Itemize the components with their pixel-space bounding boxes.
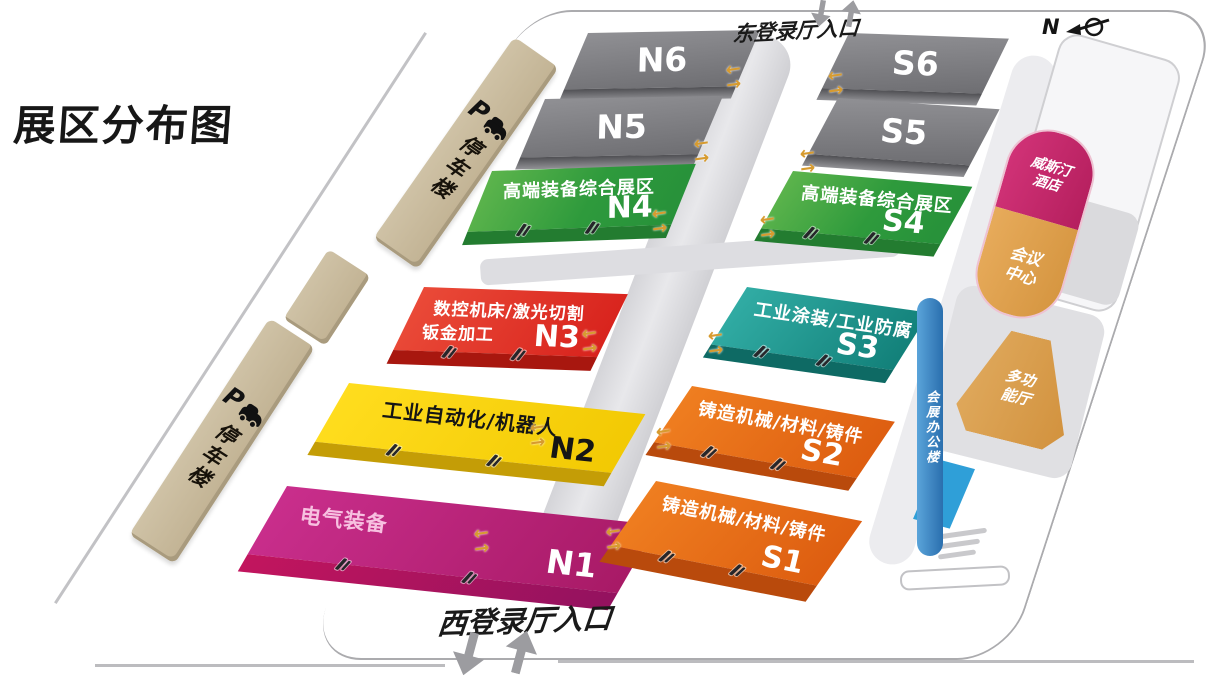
hall-s4-label: 高端装备综合展区: [800, 179, 955, 218]
transfer-arrows-icon: ←→: [530, 419, 546, 451]
hall-n5-roof: N5: [520, 96, 723, 158]
exhibition-map: N6 N5 高端装备综合展区 N4 数控机床/激光切割 钣金加工 N3: [0, 0, 1208, 680]
parking-building-joint: [283, 249, 370, 346]
transfer-arrows-icon: ←→: [606, 523, 622, 555]
car-icon: [238, 405, 264, 427]
transfer-arrows-icon: ←→: [708, 327, 724, 359]
arrow-right-icon: →: [726, 76, 741, 93]
transfer-arrows-icon: ←→: [694, 135, 710, 167]
hall-n5-code: N5: [596, 110, 647, 144]
arrow-right-icon: →: [606, 538, 621, 555]
hall-s4: 高端装备综合展区 S4: [754, 171, 972, 257]
westin-hotel-label: 威斯汀酒店: [1022, 153, 1075, 199]
arrow-right-icon: →: [708, 342, 723, 359]
hall-n5: N5: [515, 96, 723, 170]
arrow-right-icon: →: [694, 150, 709, 167]
compass-arrow-icon: [1064, 14, 1110, 40]
arrow-right-icon: →: [828, 82, 843, 99]
transfer-arrows-icon: ←→: [652, 205, 668, 237]
hall-s4-code: S4: [880, 206, 926, 239]
hall-n3-label-line2: 钣金加工: [421, 318, 495, 345]
hall-s3-code: S3: [833, 329, 880, 364]
arrow-right-icon: →: [530, 434, 545, 451]
arrow-right-icon: →: [652, 220, 667, 237]
transfer-arrows-icon: ←→: [656, 423, 672, 455]
arrow-right-icon: →: [582, 340, 597, 357]
conference-center-label: 会议中心: [1000, 242, 1045, 290]
hall-n2-code: N2: [548, 433, 598, 468]
arrow-right-icon: →: [760, 226, 775, 243]
hall-n3-code: N3: [533, 322, 581, 354]
compass: N: [1042, 14, 1110, 40]
hall-s1-code: S1: [758, 542, 807, 579]
hall-s2-code: S2: [797, 435, 845, 472]
hall-s5-code: S5: [879, 114, 929, 150]
arrow-right-icon: →: [474, 540, 489, 557]
exhibition-office-label: 会展办公楼: [922, 390, 938, 465]
page-title: 展区分布图: [12, 92, 236, 153]
arrow-down-icon: [808, 0, 834, 29]
transfer-arrows-icon: ←→: [582, 325, 598, 357]
hall-s6-code: S6: [891, 46, 940, 81]
transfer-arrows-icon: ←→: [800, 145, 816, 177]
compass-n-label: N: [1042, 15, 1060, 39]
hall-s6: S6: [816, 33, 1009, 105]
south-boundary-road-left: [95, 664, 445, 667]
transfer-arrows-icon: ←→: [726, 61, 742, 93]
parking-lower-label: 停车楼: [181, 417, 244, 494]
hall-n1-label: 电气装备: [298, 500, 390, 539]
hall-n6-code: N6: [636, 43, 687, 77]
hall-n4-code: N4: [607, 192, 653, 224]
arrow-up-icon: [838, 0, 864, 29]
arrow-right-icon: →: [800, 160, 815, 177]
transfer-arrows-icon: ←→: [760, 211, 776, 243]
transfer-arrows-icon: ←→: [474, 525, 490, 557]
south-boundary-road-right: [558, 660, 1194, 663]
car-icon: [482, 118, 508, 141]
arrow-right-icon: →: [656, 438, 671, 455]
transfer-arrows-icon: ←→: [828, 67, 844, 99]
exhibition-office-building: 会展办公楼: [917, 298, 943, 556]
hall-n1-code: N1: [544, 545, 599, 583]
multifunction-hall-label: 多功能厅: [997, 366, 1038, 410]
